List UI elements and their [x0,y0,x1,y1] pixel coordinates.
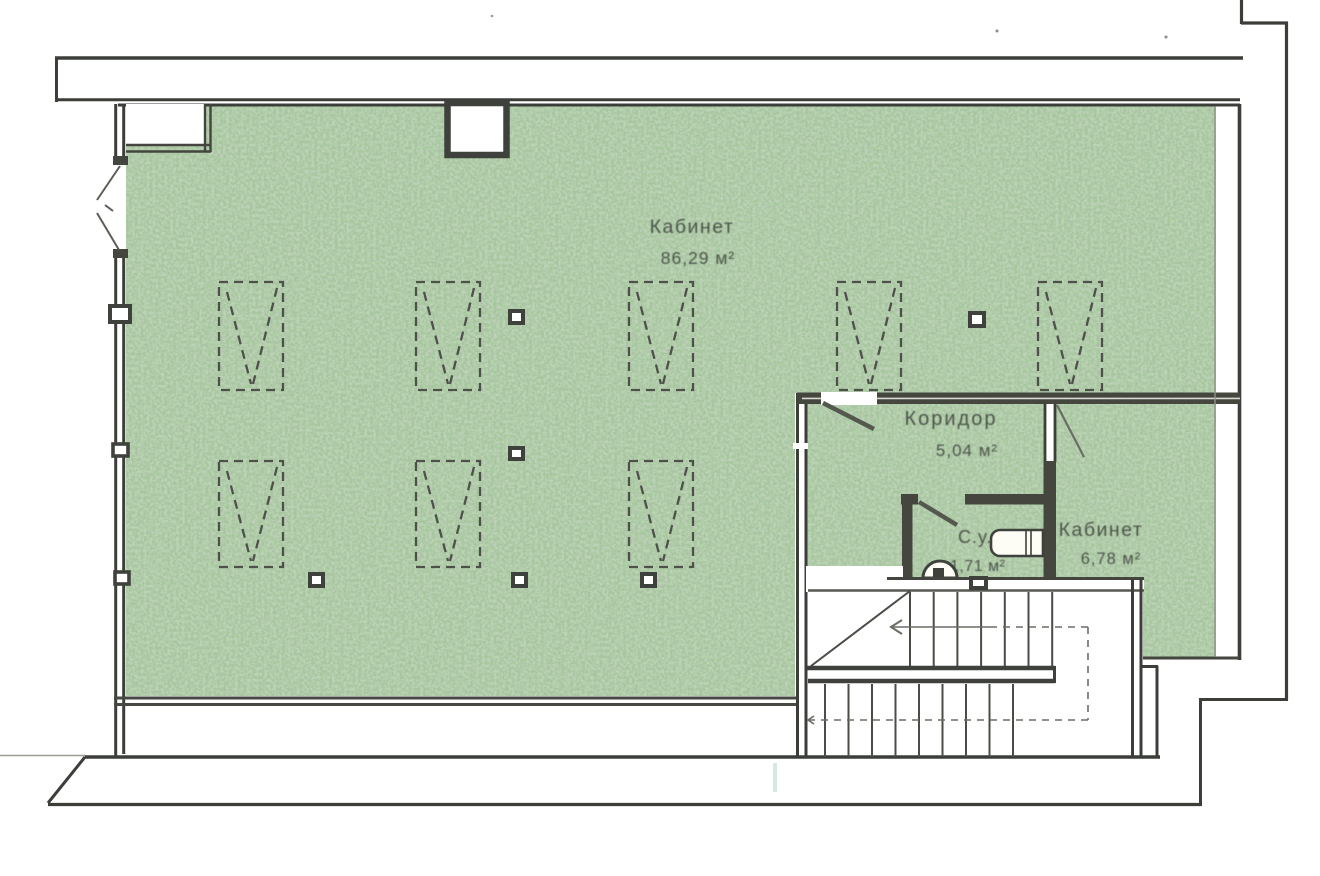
svg-text:6,78 м²: 6,78 м² [1081,550,1142,568]
svg-text:Кабинет: Кабинет [1059,519,1144,541]
svg-text:С.у.: С.у. [958,527,992,547]
svg-text:86,29 м²: 86,29 м² [661,248,736,268]
svg-text:1,71 м²: 1,71 м² [950,558,1006,575]
svg-text:Кабинет: Кабинет [650,216,735,238]
svg-text:5,04 м²: 5,04 м² [936,441,998,460]
svg-text:Коридор: Коридор [905,408,998,430]
